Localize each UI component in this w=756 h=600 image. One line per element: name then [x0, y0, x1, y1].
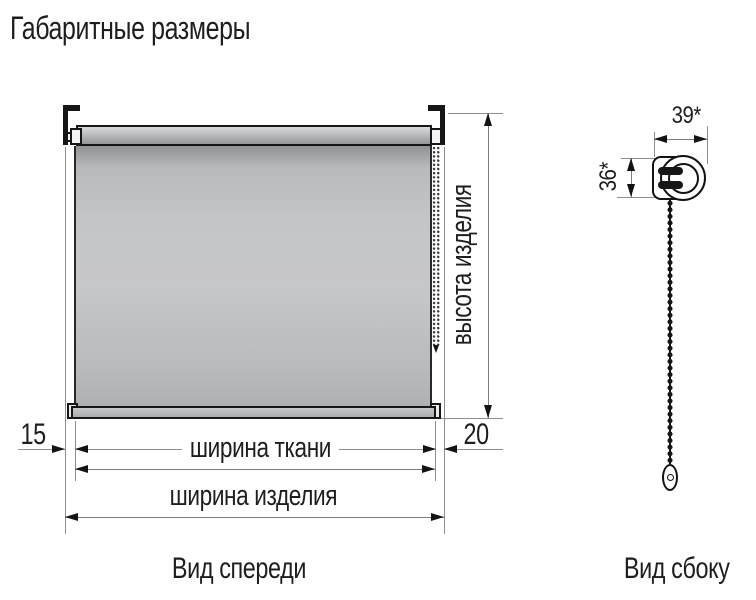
bead-chain-front-tip — [433, 345, 439, 353]
fabric-width-label: ширина ткани — [135, 433, 385, 463]
height-dimension-label: высота изделия — [448, 155, 476, 375]
arrowhead-36-bottom — [627, 184, 635, 197]
chain-slot-bottom — [658, 181, 683, 189]
dim-39-label: 39* — [646, 103, 726, 129]
arrowhead-height-bottom — [484, 405, 492, 418]
offset-15-label: 15 — [4, 422, 62, 448]
extension-line-36-bottom — [617, 197, 657, 198]
arrowhead-height-top — [484, 113, 492, 126]
bottom-bar — [71, 406, 436, 419]
control-chain — [665, 200, 675, 464]
product-width-label: ширина изделия — [133, 481, 373, 511]
arrowhead-fabric-width-left — [75, 465, 88, 473]
dimension-diagram: Габаритные размеры выс — [0, 0, 756, 600]
front-view-caption: Вид спереди — [139, 552, 339, 586]
extension-line-39-right — [707, 126, 708, 164]
arrowhead-39-left — [654, 135, 667, 143]
bead-chain-front — [432, 146, 441, 345]
arrowhead-fabric-row-left — [75, 445, 88, 453]
dim-36-label: 36* — [595, 138, 623, 216]
side-view-caption: Вид сбоку — [597, 552, 756, 586]
side-view: 39* 36* Вид сбоку — [520, 0, 756, 600]
front-view: высота изделия 15 ширина ткани 20 ширина… — [0, 0, 520, 600]
height-dimension-line — [488, 114, 489, 418]
extension-line-product-left — [65, 147, 66, 534]
arrowhead-product-width-left — [65, 513, 78, 521]
arrowhead-fabric-width-right — [422, 465, 435, 473]
tube-end-cap-left — [70, 128, 82, 145]
arrowhead-product-width-right — [431, 513, 444, 521]
chain-slot-top — [658, 167, 683, 175]
product-width-dimension-line — [65, 517, 444, 518]
offset-20-label: 20 — [447, 422, 505, 448]
roller-tube — [76, 125, 432, 146]
chain-connector-hole — [667, 474, 674, 481]
tube-end-cap-right — [430, 128, 442, 145]
fabric-panel — [74, 146, 432, 407]
extension-line-height-top — [448, 113, 503, 114]
arrowhead-39-right — [694, 135, 707, 143]
arrowhead-fabric-row-right — [423, 445, 436, 453]
fabric-width-dimension-line — [75, 469, 435, 470]
arrowhead-36-top — [627, 158, 635, 171]
